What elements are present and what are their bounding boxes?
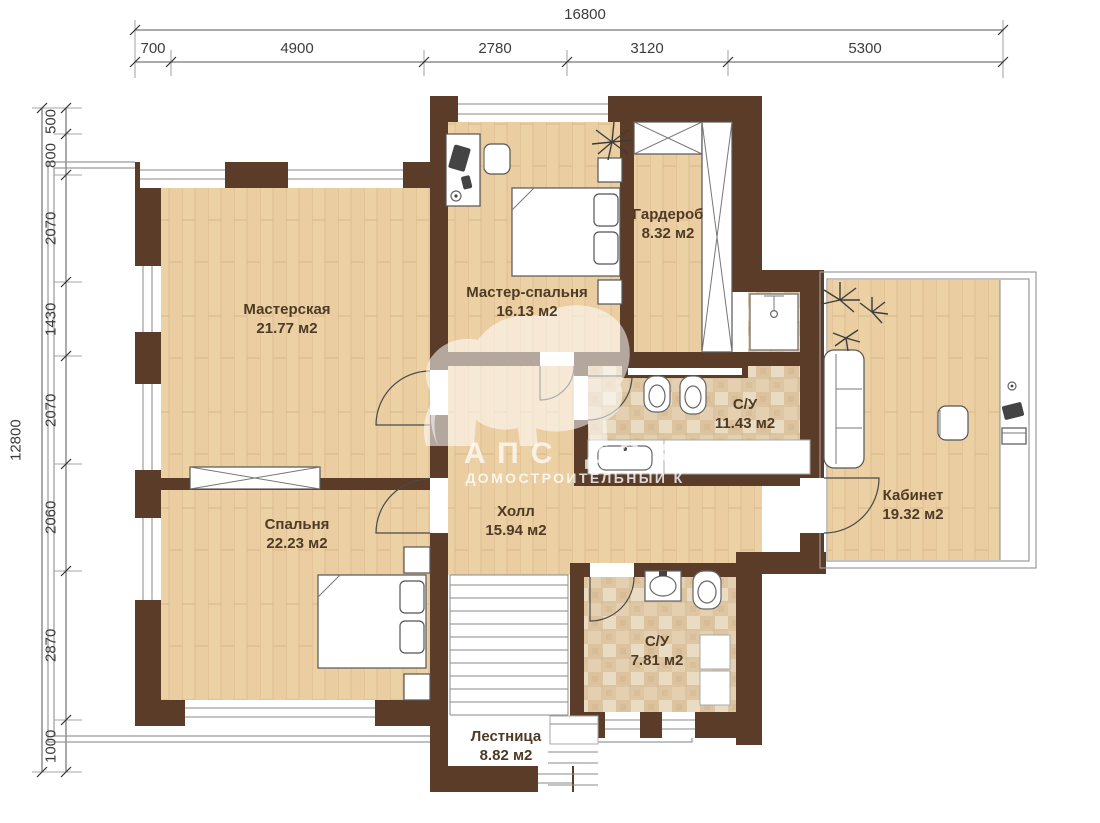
- room-name: Гардероб: [598, 205, 738, 224]
- room-area: 16.13 м2: [417, 302, 637, 321]
- room-name: Холл: [446, 502, 586, 521]
- floorplan-canvas: АПС ДСК ДОМОСТРОИТЕЛЬНЫЙ К 16800 700 490…: [0, 0, 1100, 823]
- dim-top-seg-2: 2780: [435, 40, 555, 57]
- watermark-brand: АПС ДСК: [378, 437, 768, 471]
- room-label-bedroom: Спальня 22.23 м2: [197, 515, 397, 553]
- room-name: Кабинет: [813, 486, 1013, 505]
- dim-left-seg-6: 2870: [42, 615, 60, 675]
- room-area: 19.32 м2: [813, 505, 1013, 524]
- room-name: Мастерская: [187, 300, 387, 319]
- room-area: 11.43 м2: [675, 414, 815, 433]
- dim-top-seg-4: 5300: [805, 40, 925, 57]
- room-label-hall: Холл 15.94 м2: [446, 502, 586, 540]
- dim-top-seg-3: 3120: [587, 40, 707, 57]
- dim-top-seg-0: 700: [93, 40, 213, 57]
- room-name: Спальня: [197, 515, 397, 534]
- room-label-bathroom2: С/У 7.81 м2: [587, 632, 727, 670]
- dim-left-seg-7: 1000: [42, 716, 60, 776]
- room-name: С/У: [675, 395, 815, 414]
- room-area: 15.94 м2: [446, 521, 586, 540]
- watermark-tagline: ДОМОСТРОИТЕЛЬНЫЙ К: [380, 470, 770, 486]
- room-area: 21.77 м2: [187, 319, 387, 338]
- dim-top-total: 16800: [435, 6, 735, 23]
- room-label-master-bedroom: Мастер-спальня 16.13 м2: [417, 283, 637, 321]
- room-label-stairs: Лестница 8.82 м2: [406, 727, 606, 765]
- dim-top-seg-1: 4900: [237, 40, 357, 57]
- room-area: 8.32 м2: [598, 224, 738, 243]
- dim-left-seg-4: 2070: [42, 380, 60, 440]
- room-label-masterskaya: Мастерская 21.77 м2: [187, 300, 387, 338]
- room-name: С/У: [587, 632, 727, 651]
- room-name: Мастер-спальня: [417, 283, 637, 302]
- room-label-office: Кабинет 19.32 м2: [813, 486, 1013, 524]
- room-area: 8.82 м2: [406, 746, 606, 765]
- room-name: Лестница: [406, 727, 606, 746]
- dim-left-seg-3: 1430: [42, 289, 60, 349]
- dim-left-seg-5: 2060: [42, 487, 60, 547]
- watermark-elephant: [0, 0, 1100, 823]
- dim-left-total: 12800: [6, 390, 26, 490]
- room-area: 7.81 м2: [587, 651, 727, 670]
- room-area: 22.23 м2: [197, 534, 397, 553]
- dim-left-seg-2: 2070: [42, 198, 60, 258]
- dim-left-seg-1: 800: [42, 125, 60, 185]
- room-label-wardrobe: Гардероб 8.32 м2: [598, 205, 738, 243]
- room-label-bathroom1: С/У 11.43 м2: [675, 395, 815, 433]
